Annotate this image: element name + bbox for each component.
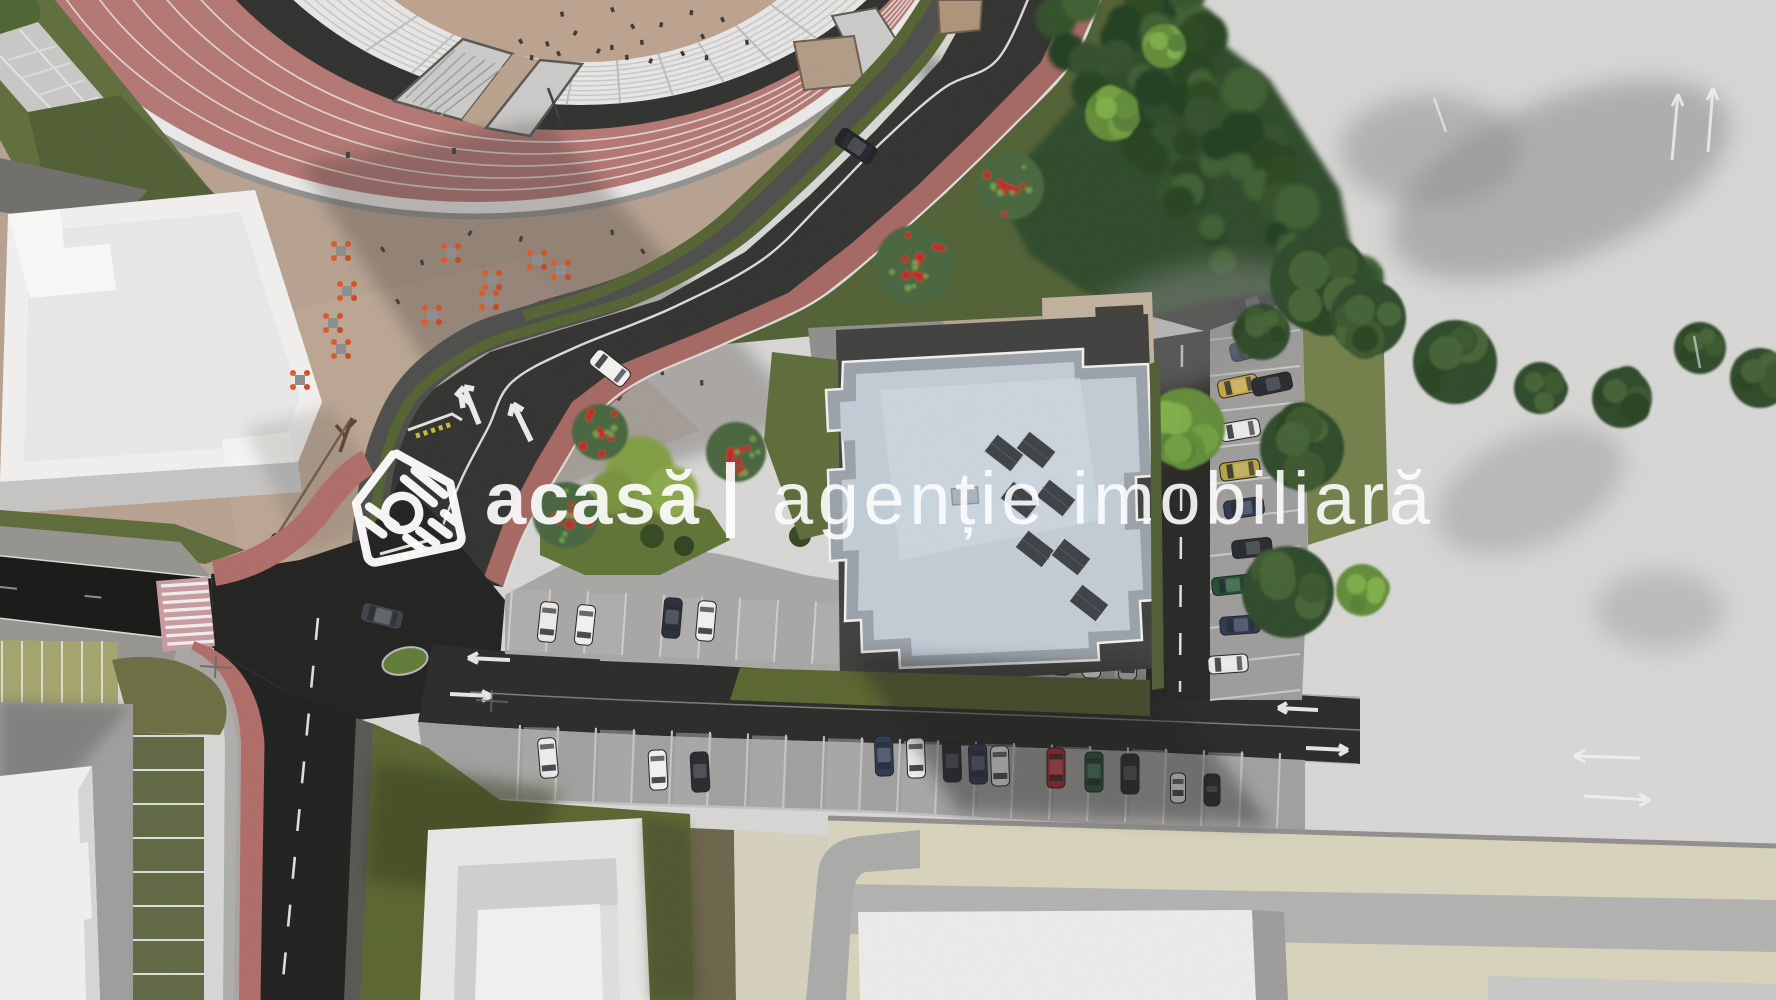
svg-text:acasă: acasă xyxy=(485,457,701,540)
svg-text:agenție imobiliară: agenție imobiliară xyxy=(772,457,1435,540)
